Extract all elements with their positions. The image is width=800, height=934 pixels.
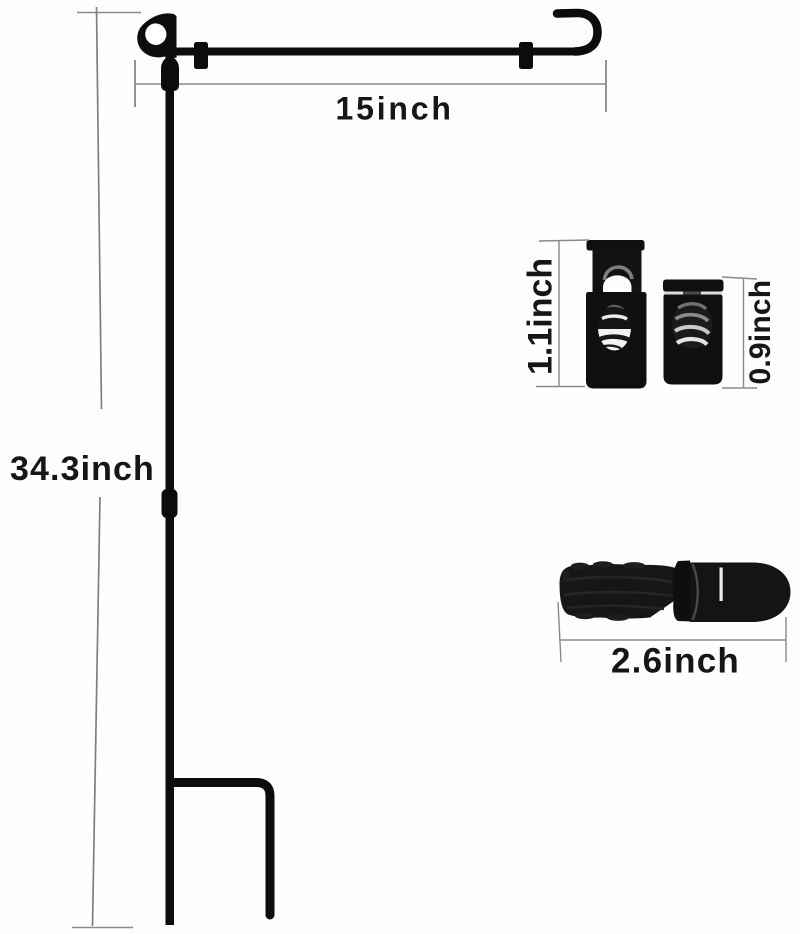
svg-text:2.6inch: 2.6inch bbox=[611, 642, 740, 681]
svg-text:0.9inch: 0.9inch bbox=[744, 280, 777, 385]
svg-text:34.3inch: 34.3inch bbox=[10, 450, 155, 488]
svg-text:1.1inch: 1.1inch bbox=[522, 258, 560, 375]
svg-text:15inch: 15inch bbox=[336, 91, 454, 127]
